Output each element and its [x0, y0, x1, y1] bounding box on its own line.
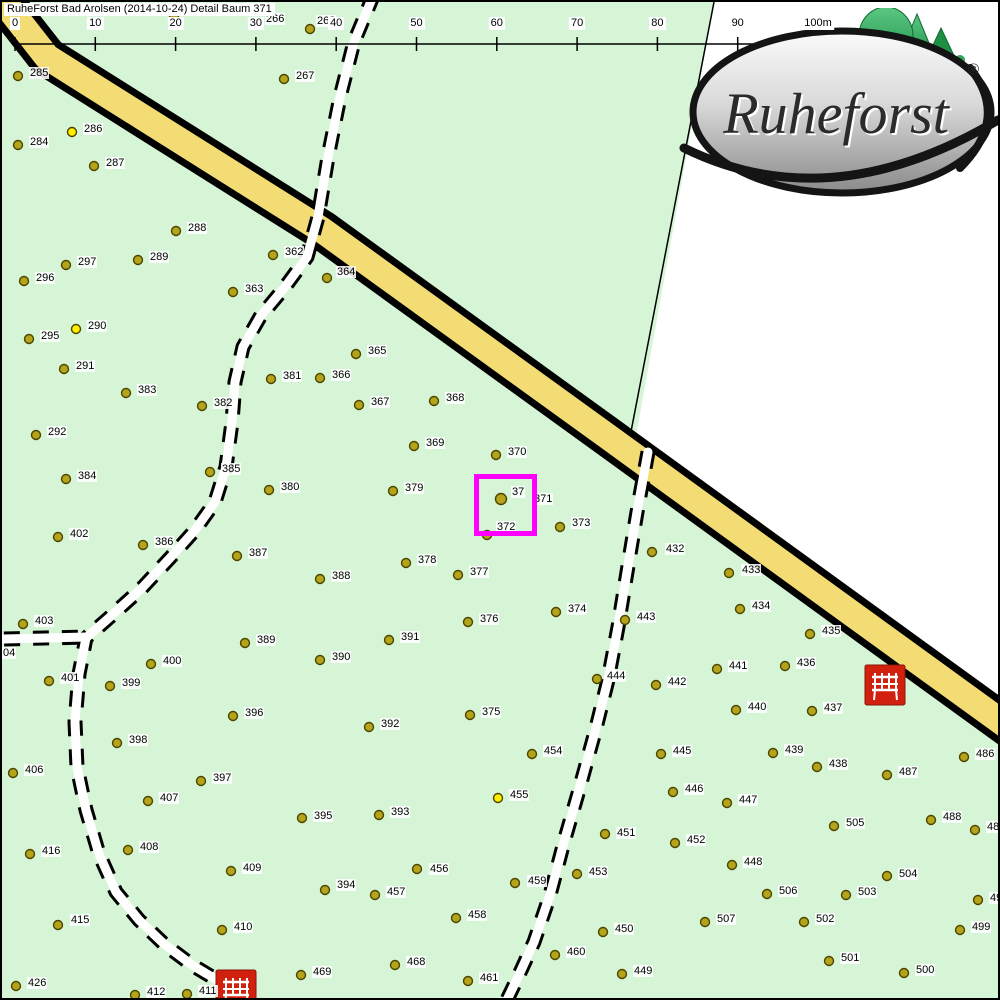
tree-label[interactable]: 454 — [543, 745, 563, 757]
tree-label[interactable]: 375 — [481, 706, 501, 718]
tree-label[interactable]: 487 — [898, 766, 918, 778]
tree-label[interactable]: 468 — [406, 956, 426, 968]
tree-label[interactable]: 408 — [139, 841, 159, 853]
scale-label: 90 — [730, 17, 746, 30]
tree-label[interactable]: 291 — [75, 360, 95, 372]
tree-label[interactable]: 415 — [70, 914, 90, 926]
tree-label[interactable]: 458 — [467, 909, 487, 921]
tree-label[interactable]: 432 — [665, 543, 685, 555]
tree-label[interactable]: 285 — [29, 67, 49, 79]
tree-label[interactable]: 409 — [242, 862, 262, 874]
tree-label[interactable]: 503 — [857, 886, 877, 898]
tree-label[interactable]: 459 — [527, 875, 547, 887]
tree-label[interactable]: 394 — [336, 879, 356, 891]
tree-label[interactable]: 284 — [29, 136, 49, 148]
tree-label[interactable]: 456 — [429, 863, 449, 875]
tree-label[interactable]: 507 — [716, 913, 736, 925]
tree-label[interactable]: 416 — [41, 845, 61, 857]
tree-label[interactable]: 411 — [198, 985, 218, 997]
tree-label[interactable]: 504 — [898, 868, 918, 880]
tree-label[interactable]: 410 — [233, 921, 253, 933]
tree-label[interactable]: 392 — [380, 718, 400, 730]
map-canvas: Ruheforst Ruheforst ® 266268267285286284… — [0, 0, 1000, 1000]
tree-label[interactable]: 289 — [149, 251, 169, 263]
tree-label[interactable]: 287 — [105, 157, 125, 169]
tree-label[interactable]: 407 — [159, 792, 179, 804]
tree-label[interactable]: 486 — [975, 748, 995, 760]
tree-label[interactable]: 04 — [2, 647, 16, 659]
tree-label[interactable]: 444 — [606, 670, 626, 682]
tree-label[interactable]: 506 — [778, 885, 798, 897]
tree-label[interactable]: 386 — [154, 536, 174, 548]
tree-label[interactable]: 435 — [821, 625, 841, 637]
tree-label[interactable]: 452 — [686, 834, 706, 846]
tree-label[interactable]: 443 — [636, 611, 656, 623]
tree-label[interactable]: 393 — [390, 806, 410, 818]
tree-label[interactable]: 297 — [77, 256, 97, 268]
tree-label[interactable]: 288 — [187, 222, 207, 234]
tree-label[interactable]: 469 — [312, 966, 332, 978]
tree-label[interactable]: 436 — [796, 657, 816, 669]
tree-label[interactable]: 374 — [567, 603, 587, 615]
tree-label[interactable]: 450 — [614, 923, 634, 935]
tree-label[interactable]: 406 — [24, 764, 44, 776]
tree-label[interactable]: 378 — [417, 554, 437, 566]
tree-label[interactable]: 447 — [738, 794, 758, 806]
tree-label[interactable]: 488 — [942, 811, 962, 823]
tree-label[interactable]: 387 — [248, 547, 268, 559]
tree-label[interactable]: 295 — [40, 330, 60, 342]
tree-label[interactable]: 366 — [331, 369, 351, 381]
tree-label[interactable]: 402 — [69, 528, 89, 540]
tree-label[interactable]: 453 — [588, 866, 608, 878]
tree-label[interactable]: 290 — [87, 320, 107, 332]
tree-label[interactable]: 449 — [633, 965, 653, 977]
tree-label[interactable]: 368 — [445, 392, 465, 404]
tree-label[interactable]: 398 — [128, 734, 148, 746]
scale-label: 40 — [328, 17, 344, 30]
tree-label[interactable]: 376 — [479, 613, 499, 625]
tree-label[interactable]: 440 — [747, 701, 767, 713]
tree-label[interactable]: 433 — [741, 564, 761, 576]
tree-label[interactable]: 390 — [331, 651, 351, 663]
scale-label: 0 — [10, 17, 20, 30]
tree-label[interactable]: 399 — [121, 677, 141, 689]
tree-label[interactable]: 438 — [828, 758, 848, 770]
tree-label[interactable]: 384 — [77, 470, 97, 482]
tree-label[interactable]: 373 — [571, 517, 591, 529]
scale-label: 80 — [649, 17, 665, 30]
tree-label[interactable]: 457 — [386, 886, 406, 898]
tree-label[interactable]: 489 — [986, 821, 1000, 833]
scale-label: 70 — [569, 17, 585, 30]
tree-label[interactable]: 363 — [244, 283, 264, 295]
scale-label: 50 — [408, 17, 424, 30]
tree-label[interactable]: 267 — [295, 70, 315, 82]
scale-label: 10 — [87, 17, 103, 30]
tree-label[interactable]: 460 — [566, 946, 586, 958]
tree-label[interactable]: 391 — [400, 631, 420, 643]
tree-label[interactable]: 501 — [840, 952, 860, 964]
selected-tree-highlight — [474, 474, 537, 536]
tree-label[interactable]: 401 — [60, 672, 80, 684]
map-title: RuheForst Bad Arolsen (2014-10-24) Detai… — [4, 3, 275, 16]
tree-label[interactable]: 367 — [370, 396, 390, 408]
tree-label[interactable]: 397 — [212, 772, 232, 784]
tree-label[interactable]: 380 — [280, 481, 300, 493]
tree-label[interactable]: 445 — [672, 745, 692, 757]
scale-label: 20 — [167, 17, 183, 30]
tree-label[interactable]: 446 — [684, 783, 704, 795]
tree-label[interactable]: 383 — [137, 384, 157, 396]
tree-label[interactable]: 389 — [256, 634, 276, 646]
tree-label[interactable]: 441 — [728, 660, 748, 672]
scale-label: 60 — [489, 17, 505, 30]
tree-label[interactable]: 500 — [915, 964, 935, 976]
tree-label[interactable]: 396 — [244, 707, 264, 719]
tree-label[interactable]: 451 — [616, 827, 636, 839]
tree-label[interactable]: 377 — [469, 566, 489, 578]
tree-label[interactable]: 379 — [404, 482, 424, 494]
tree-label[interactable]: 388 — [331, 570, 351, 582]
tree-label[interactable]: 286 — [83, 123, 103, 135]
tree-label[interactable]: 434 — [751, 600, 771, 612]
tree-label[interactable]: 364 — [336, 266, 356, 278]
tree-label[interactable]: 365 — [367, 345, 387, 357]
tree-label[interactable]: 448 — [743, 856, 763, 868]
tree-label[interactable]: 412 — [146, 986, 166, 998]
scale-label: 100m — [802, 17, 834, 30]
tree-label[interactable]: 296 — [35, 272, 55, 284]
tree-label[interactable]: 362 — [284, 246, 304, 258]
tree-label[interactable]: 442 — [667, 676, 687, 688]
tree-label[interactable]: 502 — [815, 913, 835, 925]
tree-label[interactable]: 461 — [479, 972, 499, 984]
tree-label[interactable]: 370 — [507, 446, 527, 458]
tree-label[interactable]: 381 — [282, 370, 302, 382]
tree-label[interactable]: 369 — [425, 437, 445, 449]
tree-label[interactable]: 400 — [162, 655, 182, 667]
tree-label[interactable]: 395 — [313, 810, 333, 822]
tree-label[interactable]: 292 — [47, 426, 67, 438]
tree-label[interactable]: 403 — [34, 615, 54, 627]
tree-label[interactable]: 455 — [509, 789, 529, 801]
tree-label[interactable]: 505 — [845, 817, 865, 829]
tree-label[interactable]: 385 — [221, 463, 241, 475]
tree-label[interactable]: 439 — [784, 744, 804, 756]
tree-label[interactable]: 382 — [213, 397, 233, 409]
tree-label[interactable]: 437 — [823, 702, 843, 714]
tree-label[interactable]: 499 — [971, 921, 991, 933]
scale-label: 30 — [248, 17, 264, 30]
tree-label[interactable]: 426 — [27, 977, 47, 989]
tree-label[interactable]: 498 — [989, 892, 1000, 904]
